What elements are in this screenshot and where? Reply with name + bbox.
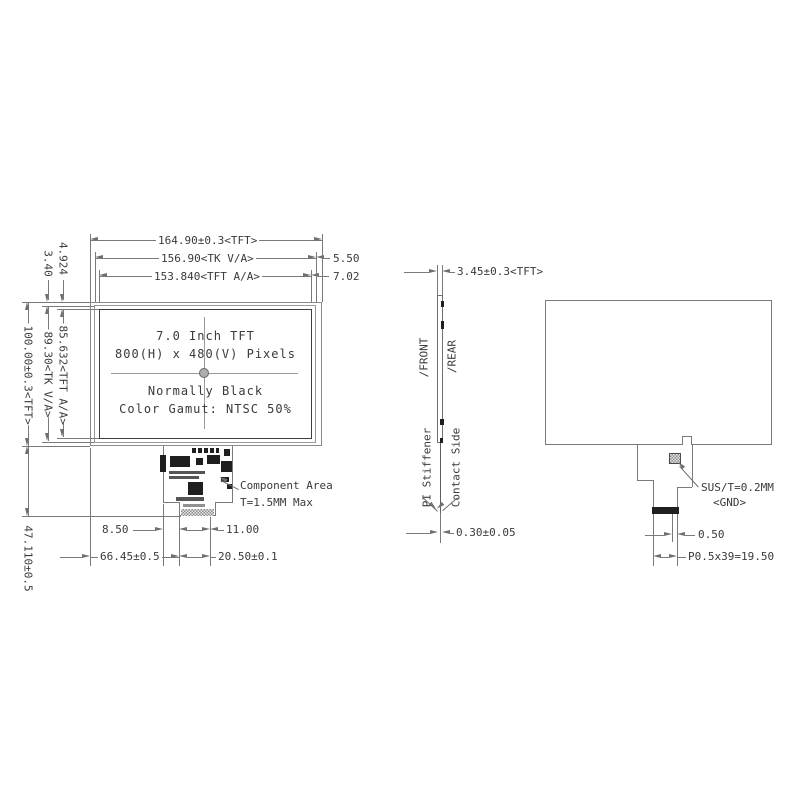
dim-line	[28, 446, 29, 516]
dim-top-offset-tk: 3.40	[42, 249, 55, 279]
ext-line	[672, 514, 673, 542]
dim-line	[404, 272, 429, 273]
arrowhead	[45, 294, 49, 302]
ext-line	[42, 306, 95, 307]
arrowhead	[311, 273, 319, 277]
dim-line	[187, 530, 202, 531]
dim-line	[218, 530, 224, 531]
arrowhead	[202, 554, 210, 558]
ext-line	[42, 442, 94, 443]
dim-pitch: P0.5x39=19.50	[688, 550, 774, 563]
side-component-mark	[441, 321, 444, 329]
dim-line	[133, 530, 155, 531]
arrowhead	[677, 532, 685, 536]
arrowhead	[90, 237, 98, 241]
arrowhead	[316, 255, 324, 259]
rear-tab	[682, 436, 692, 445]
dim-contact-margin: 0.50	[698, 528, 725, 541]
component	[188, 482, 203, 495]
dim-line	[210, 557, 216, 558]
rear-tail-line	[637, 480, 653, 481]
rear-contact-bar	[652, 507, 679, 514]
arrowhead	[202, 527, 210, 531]
ext-line	[437, 265, 438, 295]
dim-height-aa: 85.632<TFT A/A>	[57, 324, 70, 424]
component	[170, 456, 190, 467]
arrowhead	[25, 302, 29, 310]
component	[221, 461, 232, 472]
arrowhead	[95, 255, 103, 259]
dim-line	[677, 557, 686, 558]
tft-module-drawing: 164.90±0.3<TFT> 156.90<TK V/A> 5.50 153.…	[0, 0, 800, 800]
dim-line	[450, 533, 454, 534]
arrowhead	[82, 554, 90, 558]
rear-face-label: /REAR	[446, 337, 459, 377]
display-info-line4: Color Gamut: NTSC 50%	[99, 402, 312, 416]
dim-line	[60, 557, 82, 558]
display-info-line1: 7.0 Inch TFT	[99, 329, 312, 343]
arrowhead	[25, 508, 29, 516]
ext-line	[22, 302, 90, 303]
rear-tail-line	[677, 487, 692, 488]
dim-fpc-thickness: 0.30±0.05	[456, 526, 516, 539]
arrowhead	[430, 530, 438, 534]
arrowhead	[303, 273, 311, 277]
arrowhead	[429, 269, 437, 273]
side-component-mark	[440, 419, 444, 425]
arrowhead	[25, 446, 29, 454]
dim-thickness: 3.45±0.3<TFT>	[457, 265, 543, 278]
arrowhead	[669, 554, 677, 558]
component	[192, 448, 219, 453]
front-face-label: /FRONT	[418, 335, 431, 381]
display-info-line3: Normally Black	[99, 384, 312, 398]
dim-line	[324, 258, 330, 259]
arrowhead	[442, 269, 450, 273]
dim-tail-length: 47.110±0.5	[22, 524, 35, 594]
rear-tail-line	[653, 480, 654, 507]
center-mark-icon	[199, 368, 209, 378]
ext-line	[57, 438, 99, 439]
component	[196, 458, 203, 465]
component	[160, 455, 166, 472]
gnd-label: <GND>	[713, 496, 746, 509]
arrowhead	[60, 429, 64, 437]
ext-line	[90, 448, 91, 566]
dim-20-50: 20.50±0.1	[218, 550, 278, 563]
component	[176, 497, 204, 501]
component-area-thickness: T=1.5MM Max	[240, 496, 313, 509]
ext-line	[22, 446, 90, 447]
dim-height-tft: 100.00±0.3<TFT>	[22, 324, 35, 426]
ext-line	[95, 252, 96, 302]
component	[207, 455, 220, 464]
arrowhead	[210, 527, 218, 531]
dim-66-45: 66.45±0.5	[98, 550, 162, 563]
rear-tail-line	[637, 445, 638, 480]
arrowhead	[677, 461, 685, 470]
fpc-contacts	[181, 509, 214, 516]
ext-line	[677, 514, 678, 566]
ext-line	[440, 513, 441, 543]
arrowhead	[60, 309, 64, 317]
dim-top-offset-aa: 4.924	[57, 241, 70, 277]
arrowhead	[664, 532, 672, 536]
ext-line	[653, 514, 654, 566]
sus-label: SUS/T=0.2MM	[701, 481, 774, 494]
dim-width-tk: 156.90<TK V/A>	[159, 252, 256, 265]
dim-line	[661, 557, 669, 558]
dim-line	[450, 272, 455, 273]
arrowhead	[60, 294, 64, 302]
arrowhead	[314, 237, 322, 241]
dim-line	[645, 535, 664, 536]
arrowhead	[653, 554, 661, 558]
arrowhead	[308, 255, 316, 259]
rear-tail-line	[677, 487, 678, 507]
arrowhead	[179, 527, 187, 531]
arrowhead	[25, 438, 29, 446]
dim-right-offset-tk: 5.50	[333, 252, 360, 265]
arrowhead	[45, 306, 49, 314]
arrowhead	[99, 273, 107, 277]
dim-line	[187, 557, 202, 558]
dim-right-offset-aa: 7.02	[333, 270, 360, 283]
dim-line	[685, 535, 695, 536]
ext-line	[90, 234, 91, 302]
pi-stiffener-label: PI Stiffener	[421, 428, 434, 508]
component-area-label: Component Area	[240, 479, 333, 492]
dim-height-tk: 89.30<TK V/A>	[42, 330, 55, 418]
display-info-line2: 800(H) x 480(V) Pixels	[99, 347, 312, 361]
component	[169, 471, 205, 474]
dim-width-tft: 164.90±0.3<TFT>	[156, 234, 259, 247]
arrowhead	[171, 554, 179, 558]
ext-line	[179, 517, 180, 566]
component	[169, 476, 199, 479]
ext-line	[210, 517, 211, 566]
ext-line	[316, 252, 317, 302]
rear-outline	[545, 300, 772, 445]
dim-width-aa: 153.840<TFT A/A>	[152, 270, 262, 283]
dim-line	[406, 533, 430, 534]
component	[183, 504, 205, 507]
dim-11-00: 11.00	[226, 523, 259, 536]
component	[224, 449, 230, 456]
dim-line	[319, 276, 329, 277]
side-component-mark	[441, 301, 444, 307]
dim-8-50: 8.50	[102, 523, 129, 536]
arrowhead	[179, 554, 187, 558]
arrowhead	[45, 433, 49, 441]
ext-line	[22, 516, 181, 517]
ext-line	[322, 234, 323, 302]
arrowhead	[155, 527, 163, 531]
arrowhead	[442, 530, 450, 534]
